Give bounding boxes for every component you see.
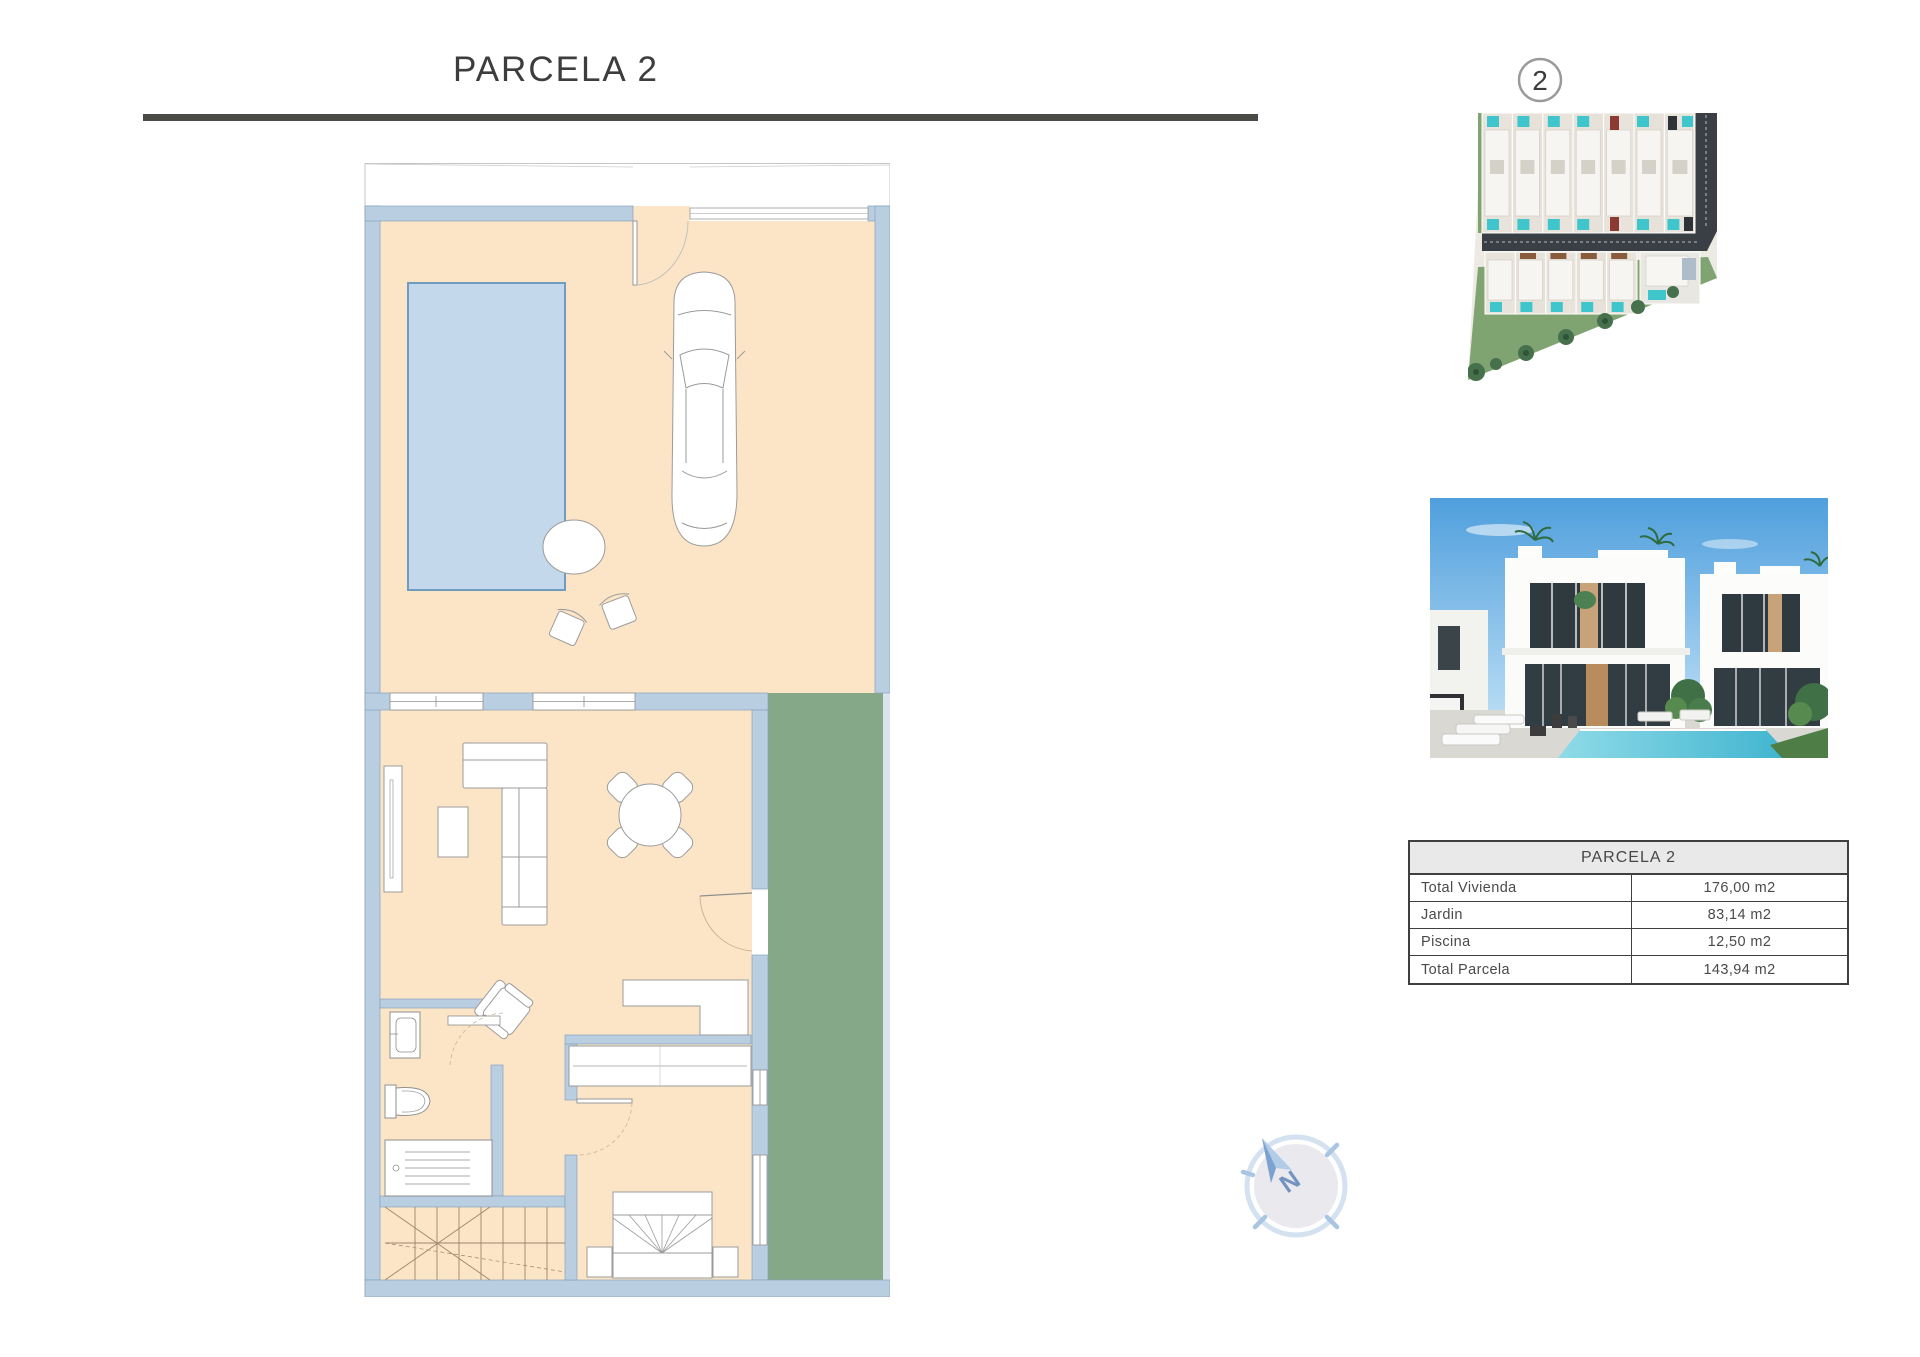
tv-unit: [384, 766, 402, 892]
row-label: Total Vivienda: [1410, 875, 1632, 901]
summary-table: PARCELA 2 Total Vivienda 176,00 m2 Jardi…: [1408, 840, 1849, 985]
row-label: Jardin: [1410, 902, 1632, 928]
floor-plan-drawing: [330, 163, 890, 1297]
site-top-row: [1482, 113, 1695, 233]
plot-number: 2: [1532, 65, 1548, 96]
site-bottom-row: [1485, 252, 1700, 314]
villa-render-photo: [1430, 498, 1828, 758]
compass-icon: N: [1238, 1128, 1356, 1246]
car: [664, 272, 745, 546]
table-row: Piscina 12,50 m2: [1410, 929, 1847, 956]
villa-render-illustration: [1430, 498, 1828, 758]
table-row: Total Vivienda 176,00 m2: [1410, 875, 1847, 902]
photo-pool: [1558, 730, 1792, 758]
row-value: 143,94 m2: [1632, 956, 1847, 983]
site-plan-drawing: 2: [1468, 42, 1718, 387]
entrance-door-leaf: [633, 221, 637, 285]
wardrobe: [569, 1046, 751, 1086]
bed: [613, 1192, 712, 1278]
floor-plan: [330, 163, 890, 1297]
row-value: 176,00 m2: [1632, 875, 1847, 901]
document-page: PARCELA 2: [0, 0, 1920, 1357]
page-title: PARCELA 2: [286, 50, 826, 90]
fence-strip: [883, 693, 890, 1280]
summary-table-header: PARCELA 2: [1410, 842, 1847, 875]
title-underline: [143, 114, 1258, 121]
site-car-red: [1610, 116, 1619, 130]
nightstand: [587, 1247, 612, 1277]
coffee-table: [438, 807, 468, 857]
row-label: Total Parcela: [1410, 956, 1632, 983]
table-row: Total Parcela 143,94 m2: [1410, 956, 1847, 983]
table-row: Jardin 83,14 m2: [1410, 902, 1847, 929]
main-villa: [1502, 546, 1690, 728]
garden: [768, 693, 883, 1280]
site-car-dark: [1668, 116, 1677, 130]
row-value: 83,14 m2: [1632, 902, 1847, 928]
row-label: Piscina: [1410, 929, 1632, 955]
site-plan: 2: [1468, 42, 1718, 387]
bedroom-windows: [753, 1070, 767, 1245]
compass: N: [1238, 1128, 1356, 1246]
pool: [408, 283, 565, 590]
row-value: 12,50 m2: [1632, 929, 1847, 955]
nightstand: [713, 1247, 738, 1277]
